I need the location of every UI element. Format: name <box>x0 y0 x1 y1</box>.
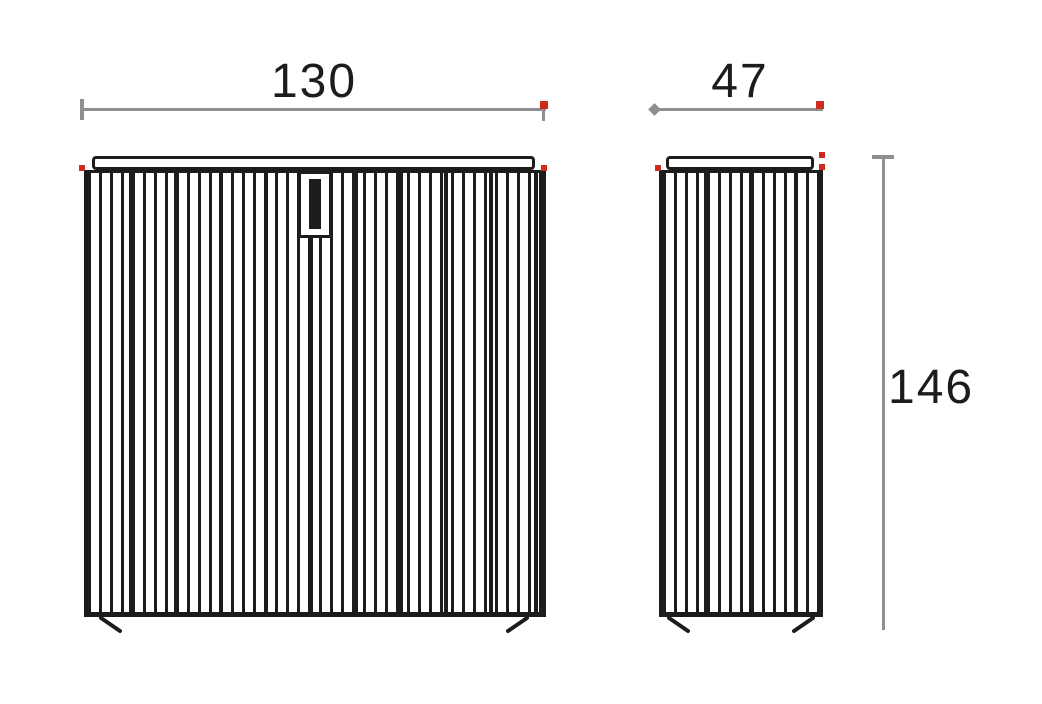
height-dimension-top-tick <box>872 155 894 159</box>
front-left-leg <box>101 618 120 631</box>
width-dimension-label: 130 <box>214 58 414 106</box>
side-top-right-upper-red-marker <box>819 152 825 158</box>
height-dimension-label: 146 <box>888 364 974 412</box>
front-view-top-panel <box>92 156 535 170</box>
side-view-top-panel <box>666 156 814 170</box>
height-dimension-line <box>882 156 885 630</box>
width-dimension-red-marker <box>540 101 548 109</box>
side-left-leg <box>669 618 688 631</box>
front-top-right-red-marker <box>541 165 547 171</box>
width-dimension-end-tick <box>542 108 545 121</box>
drawing-canvas: 130 47 146 <box>0 0 1042 704</box>
side-view-body <box>659 170 823 617</box>
front-top-left-red-marker <box>79 165 85 171</box>
side-right-leg <box>794 618 813 631</box>
front-right-leg <box>508 618 527 631</box>
side-top-left-red-marker <box>655 165 661 171</box>
depth-dimension-label: 47 <box>640 58 840 106</box>
depth-dimension-line <box>653 108 823 111</box>
width-dimension-line <box>82 108 546 111</box>
width-dimension-start-tick <box>80 99 84 120</box>
front-door-handle <box>298 171 332 238</box>
handle-grip-bar <box>309 179 321 229</box>
depth-dimension-red-marker <box>816 101 824 109</box>
side-top-right-lower-red-marker <box>819 164 825 170</box>
